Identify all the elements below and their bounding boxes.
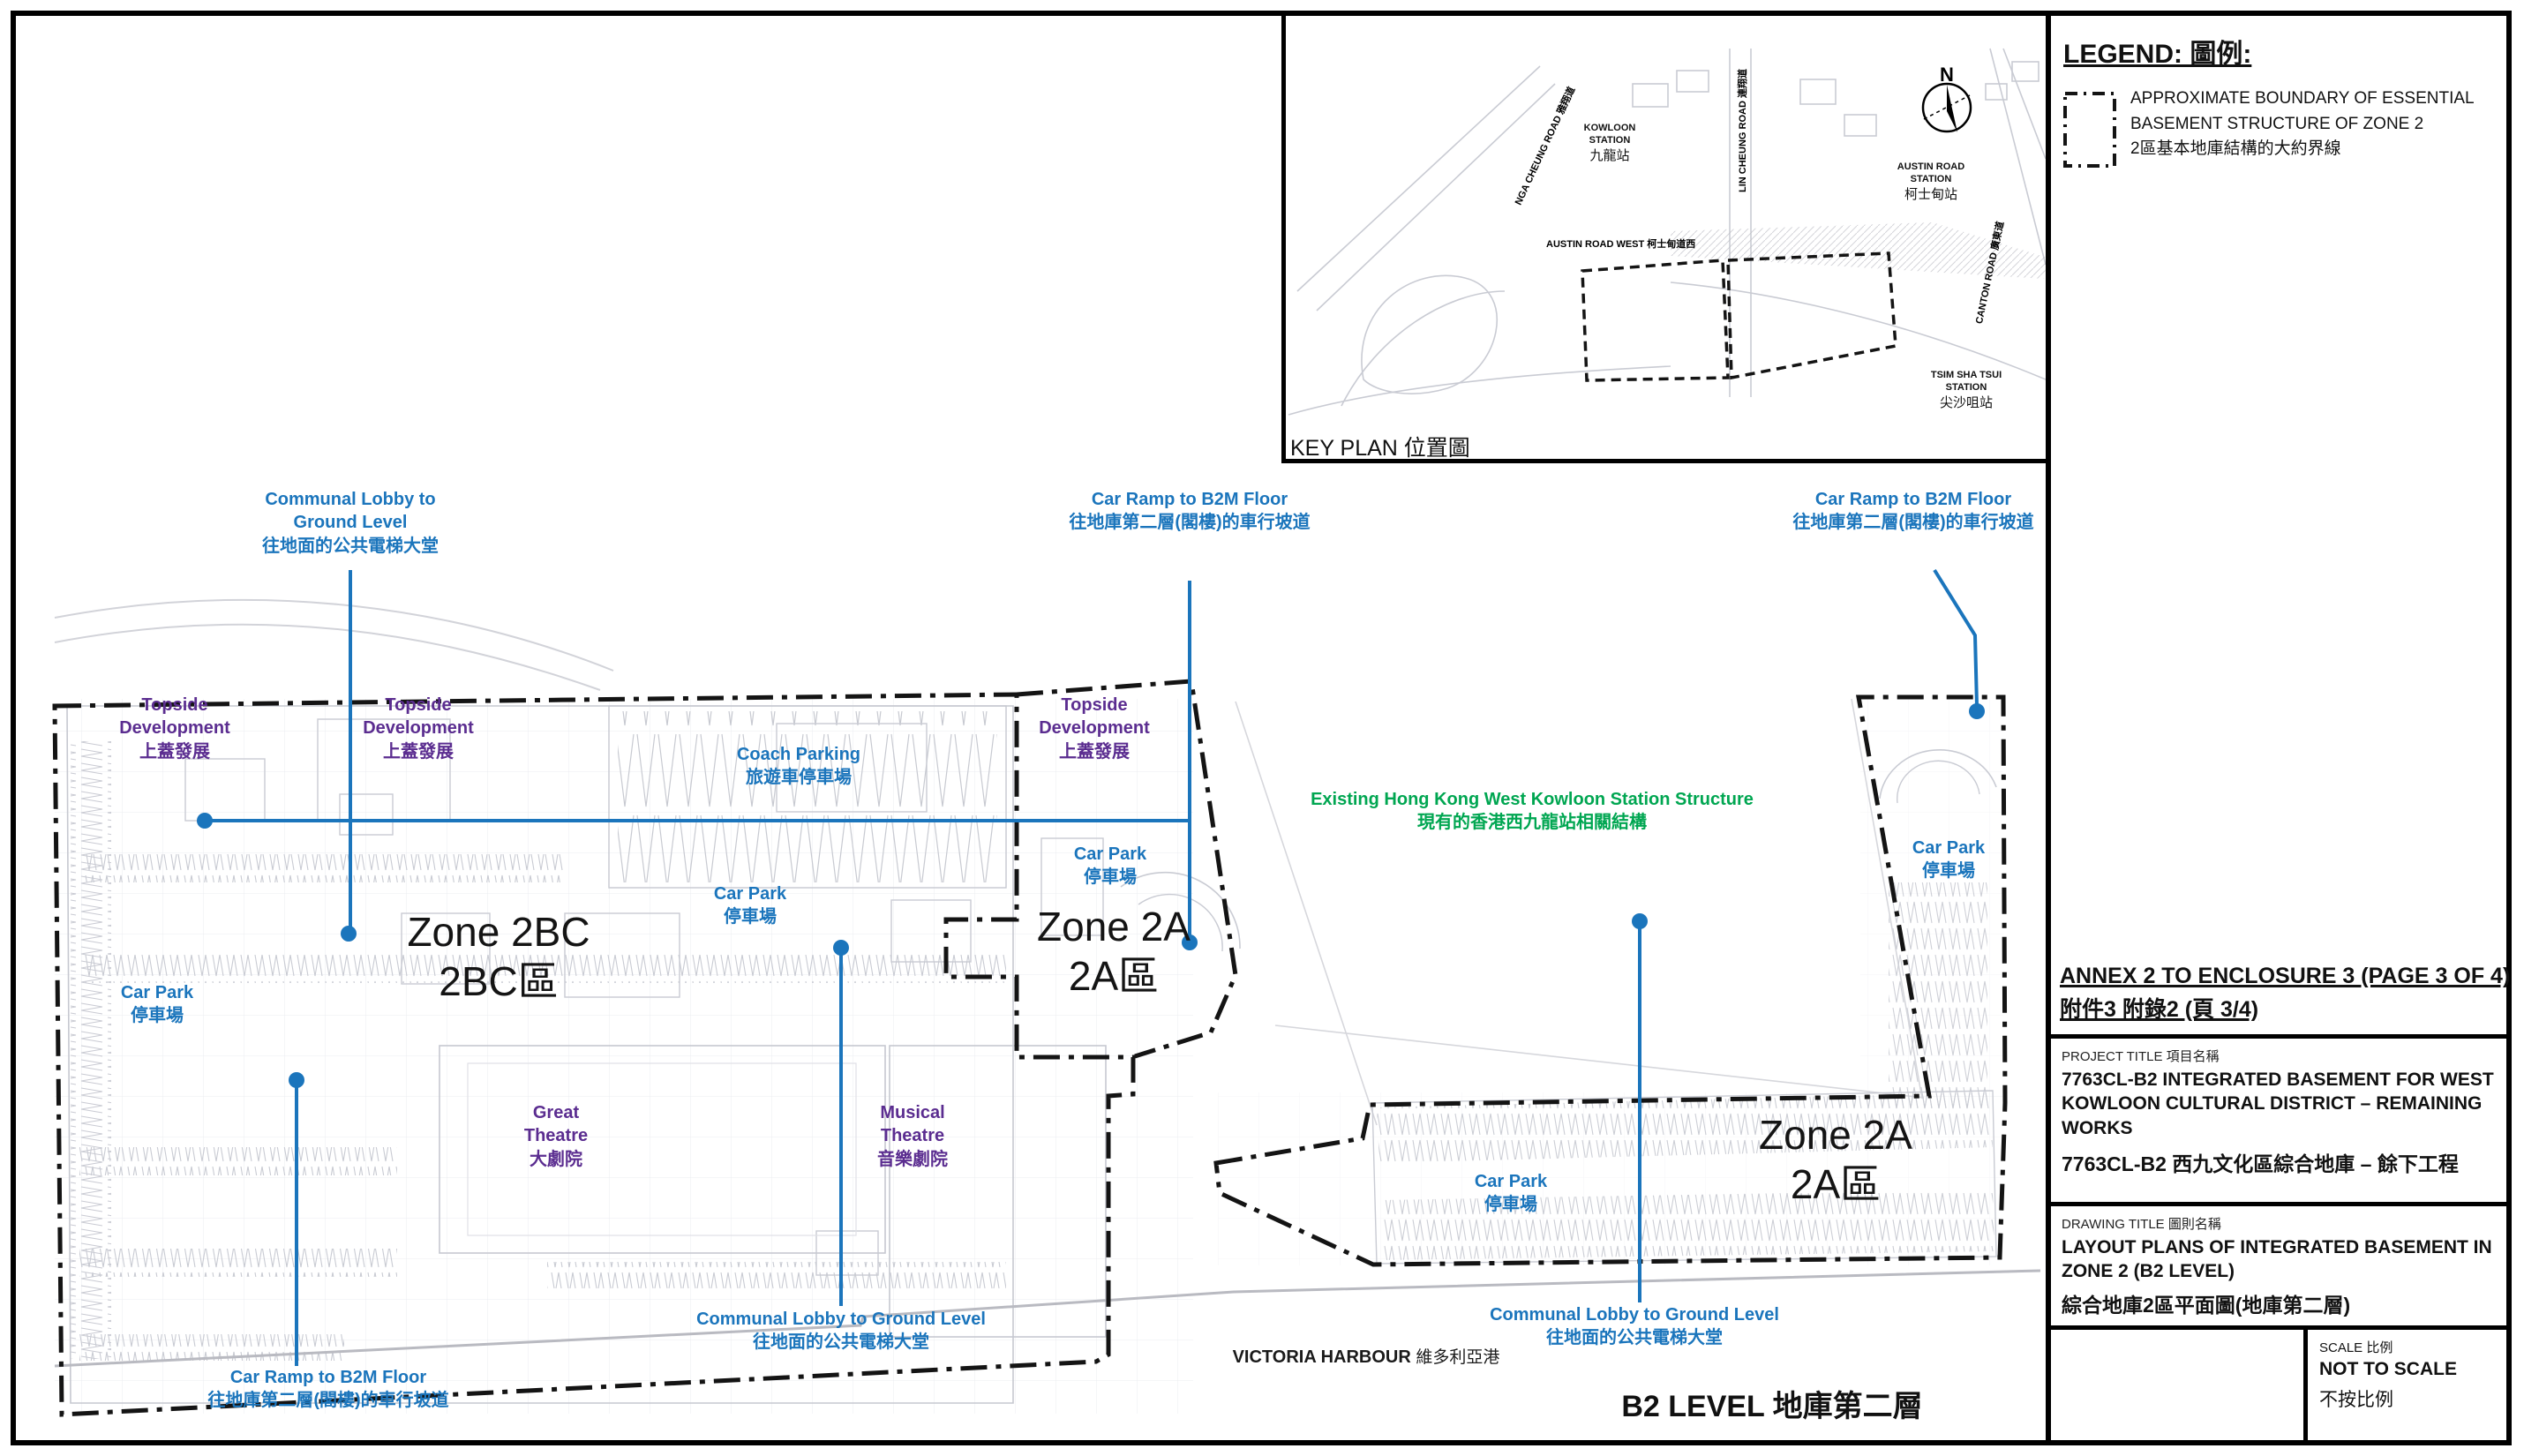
station-line: TSIM SHA TSUI: [1931, 369, 2002, 381]
label-zone-2a-east: Zone 2A 2A區: [1759, 1110, 1912, 1209]
zone-name-zh: 2A區: [1759, 1160, 1912, 1209]
drawing-title-zh: 綜合地庫2區平面圖(地庫第二層): [2062, 1288, 2350, 1318]
annex-line-zh: 附件3 附錄2 (頁 3/4): [2060, 994, 2510, 1027]
scale-heading: SCALE 比例: [2319, 1338, 2393, 1356]
label-line-en: Communal Lobby to Ground Level: [1490, 1303, 1779, 1326]
title-block-rule: [2046, 1034, 2512, 1039]
legend-line: BASEMENT STRUCTURE OF ZONE 2: [2130, 112, 2475, 138]
label-line-en: Topside: [363, 694, 474, 717]
label-line-en: Car Ramp to B2M Floor: [207, 1366, 448, 1389]
station-line-zh: 九龍站: [1584, 147, 1636, 165]
label-line-en: Communal Lobby to: [262, 488, 439, 511]
label-line-en: Topside: [119, 694, 230, 717]
label-line-zh: 往地面的公共電梯大堂: [1490, 1326, 1779, 1349]
label-line-en: Communal Lobby to Ground Level: [696, 1308, 986, 1331]
station-line: STATION: [1931, 381, 2002, 394]
project-title-text: 7763CL-B2 INTEGRATED BASEMENT FOR WEST K…: [2062, 1068, 2494, 1140]
drawing-sheet: Communal Lobby to Ground Level 往地面的公共電梯大…: [0, 0, 2524, 1456]
label-coach-parking: Coach Parking 旅遊車停車場: [737, 743, 860, 790]
zone-name-zh: 2A區: [1037, 951, 1191, 1001]
label-line-en: Car Park: [1475, 1170, 1547, 1193]
label-car-park-south: Car Park 停車場: [1475, 1170, 1547, 1217]
legend-boundary-text: APPROXIMATE BOUNDARY OF ESSENTIAL BASEME…: [2130, 86, 2475, 162]
label-victoria-harbour: VICTORIA HARBOUR 維多利亞港: [1233, 1345, 1500, 1370]
label-line-en: Car Ramp to B2M Floor: [1792, 488, 2033, 511]
label-car-park-west: Car Park 停車場: [121, 981, 193, 1028]
keyplan-kowloon-station: KOWLOON STATION 九龍站: [1580, 120, 1641, 166]
label-line-zh: 上蓋發展: [119, 740, 230, 763]
label-line-zh: 往地面的公共電梯大堂: [696, 1331, 986, 1354]
drawing-line: ZONE 2 (B2 LEVEL): [2062, 1259, 2492, 1283]
label-topside-mid: Topside Development 上蓋發展: [363, 694, 474, 763]
label-line-zh: 維多利亞港: [1416, 1348, 1499, 1367]
label-line-en: Theatre: [877, 1124, 948, 1147]
label-car-park-2a: Car Park 停車場: [1074, 843, 1146, 889]
zone-name-en: Zone 2BC: [407, 907, 590, 957]
annex-heading: ANNEX 2 TO ENCLOSURE 3 (PAGE 3 OF 4) 附件3…: [2060, 960, 2510, 1026]
legend-title: LEGEND: 圖例:: [2063, 32, 2251, 71]
label-line-zh: 現有的香港西九龍站相關結構: [1311, 811, 1754, 834]
label-line-en: Development: [1039, 717, 1150, 739]
label-line-zh: 旅遊車停車場: [737, 766, 860, 789]
label-line-zh: 往地庫第二層(閣樓)的車行坡道: [1069, 511, 1310, 534]
label-line-zh: 往地庫第二層(閣樓)的車行坡道: [1792, 511, 2033, 534]
keyplan-lin-cheung-road: LIN CHEUNG ROAD 連翔道: [1735, 69, 1749, 192]
station-line-zh: 尖沙咀站: [1931, 394, 2002, 412]
label-line-en: Development: [119, 717, 230, 739]
label-line-en: Car Park: [714, 882, 786, 905]
project-line: WORKS: [2062, 1116, 2494, 1140]
label-line-zh: 上蓋發展: [1039, 740, 1150, 763]
project-title-heading: PROJECT TITLE 項目名稱: [2062, 1047, 2220, 1065]
station-line: AUSTIN ROAD: [1897, 161, 1964, 173]
label-line-en: Topside: [1039, 694, 1150, 717]
project-title-zh: 7763CL-B2 西九文化區綜合地庫 – 餘下工程: [2062, 1147, 2459, 1177]
label-line-zh: 往地面的公共電梯大堂: [262, 535, 439, 558]
label-line-zh: 停車場: [1074, 866, 1146, 889]
label-musical-theatre: Musical Theatre 音樂劇院: [877, 1101, 948, 1171]
label-line-en: Car Ramp to B2M Floor: [1069, 488, 1310, 511]
label-car-ramp-top-center: Car Ramp to B2M Floor 往地庫第二層(閣樓)的車行坡道: [1069, 488, 1310, 535]
label-great-theatre: Great Theatre 大劇院: [524, 1101, 588, 1171]
label-line-zh: 停車場: [121, 1004, 193, 1027]
keyplan-caption: KEY PLAN 位置圖: [1290, 431, 1470, 462]
scale-cell-divider: [2303, 1325, 2308, 1444]
label-line-zh: 停車場: [714, 905, 786, 928]
station-line: KOWLOON: [1584, 122, 1636, 134]
zone-name-en: Zone 2A: [1037, 902, 1191, 951]
label-car-ramp-top-right: Car Ramp to B2M Floor 往地庫第二層(閣樓)的車行坡道: [1792, 488, 2033, 535]
drawing-title-text: LAYOUT PLANS OF INTEGRATED BASEMENT IN Z…: [2062, 1235, 2492, 1284]
keyplan-tsim-sha-tsui-station: TSIM SHA TSUI STATION 尖沙咀站: [1927, 367, 2006, 413]
station-line-zh: 柯士甸站: [1897, 186, 1964, 204]
project-line: KOWLOON CULTURAL DISTRICT – REMAINING: [2062, 1092, 2494, 1115]
label-communal-lobby-top: Communal Lobby to Ground Level 往地面的公共電梯大…: [262, 488, 439, 558]
label-topside-west: Topside Development 上蓋發展: [119, 694, 230, 763]
label-line-zh: 音樂劇院: [877, 1148, 948, 1171]
label-line-en: Car Park: [121, 981, 193, 1004]
label-line-zh: 停車場: [1475, 1193, 1547, 1216]
zone-name-zh: 2BC區: [407, 957, 590, 1006]
label-car-ramp-bottom-left: Car Ramp to B2M Floor 往地庫第二層(閣樓)的車行坡道: [207, 1366, 448, 1413]
label-line-zh: 往地庫第二層(閣樓)的車行坡道: [207, 1389, 448, 1412]
label-topside-east: Topside Development 上蓋發展: [1039, 694, 1150, 763]
label-line-en: Existing Hong Kong West Kowloon Station …: [1311, 788, 1754, 811]
station-line: STATION: [1897, 173, 1964, 185]
north-label: N: [1940, 64, 1954, 86]
label-line-en: Great: [524, 1101, 588, 1124]
label-line-en: Development: [363, 717, 474, 739]
label-communal-lobby-bottom-mid: Communal Lobby to Ground Level 往地面的公共電梯大…: [696, 1308, 986, 1355]
label-communal-lobby-bottom-right: Communal Lobby to Ground Level 往地面的公共電梯大…: [1490, 1303, 1779, 1350]
label-line-en: Car Park: [1074, 843, 1146, 866]
level-caption: B2 LEVEL 地庫第二層: [1621, 1382, 1922, 1425]
title-block-rule: [2046, 1202, 2512, 1206]
label-line-zh: 大劇院: [524, 1148, 588, 1171]
label-line-en: Car Park: [1912, 837, 1985, 859]
title-block-rule: [2046, 1325, 2512, 1330]
drawing-line: LAYOUT PLANS OF INTEGRATED BASEMENT IN: [2062, 1235, 2492, 1259]
label-line-zh: 停車場: [1912, 859, 1985, 882]
label-line-en: Musical: [877, 1101, 948, 1124]
legend-line-zh: 2區基本地庫結構的大約界線: [2130, 137, 2475, 162]
keyplan-austin-road-west: AUSTIN ROAD WEST 柯士甸道西: [1546, 236, 1695, 251]
label-line-en: Theatre: [524, 1124, 588, 1147]
label-line-en: VICTORIA HARBOUR: [1233, 1347, 1411, 1367]
station-line: STATION: [1584, 134, 1636, 146]
label-existing-station: Existing Hong Kong West Kowloon Station …: [1311, 788, 1754, 835]
label-line-en: Coach Parking: [737, 743, 860, 766]
label-zone-2a-mid: Zone 2A 2A區: [1037, 902, 1191, 1001]
label-zone-2bc: Zone 2BC 2BC區: [407, 907, 590, 1006]
keyplan-austin-road-station: AUSTIN ROAD STATION 柯士甸站: [1893, 159, 1969, 205]
label-line-en: Ground Level: [262, 511, 439, 534]
label-line-zh: 上蓋發展: [363, 740, 474, 763]
label-car-park-central: Car Park 停車場: [714, 882, 786, 929]
label-car-park-east: Car Park 停車場: [1912, 837, 1985, 883]
drawing-title-heading: DRAWING TITLE 圖則名稱: [2062, 1214, 2221, 1233]
scale-value-zh: 不按比例: [2319, 1385, 2393, 1412]
annex-line-en: ANNEX 2 TO ENCLOSURE 3 (PAGE 3 OF 4): [2060, 960, 2510, 994]
zone-name-en: Zone 2A: [1759, 1110, 1912, 1160]
legend-boundary-symbol: [2062, 90, 2120, 171]
project-line: 7763CL-B2 INTEGRATED BASEMENT FOR WEST: [2062, 1068, 2494, 1092]
legend-line: APPROXIMATE BOUNDARY OF ESSENTIAL: [2130, 86, 2475, 112]
scale-value: NOT TO SCALE: [2319, 1359, 2457, 1380]
